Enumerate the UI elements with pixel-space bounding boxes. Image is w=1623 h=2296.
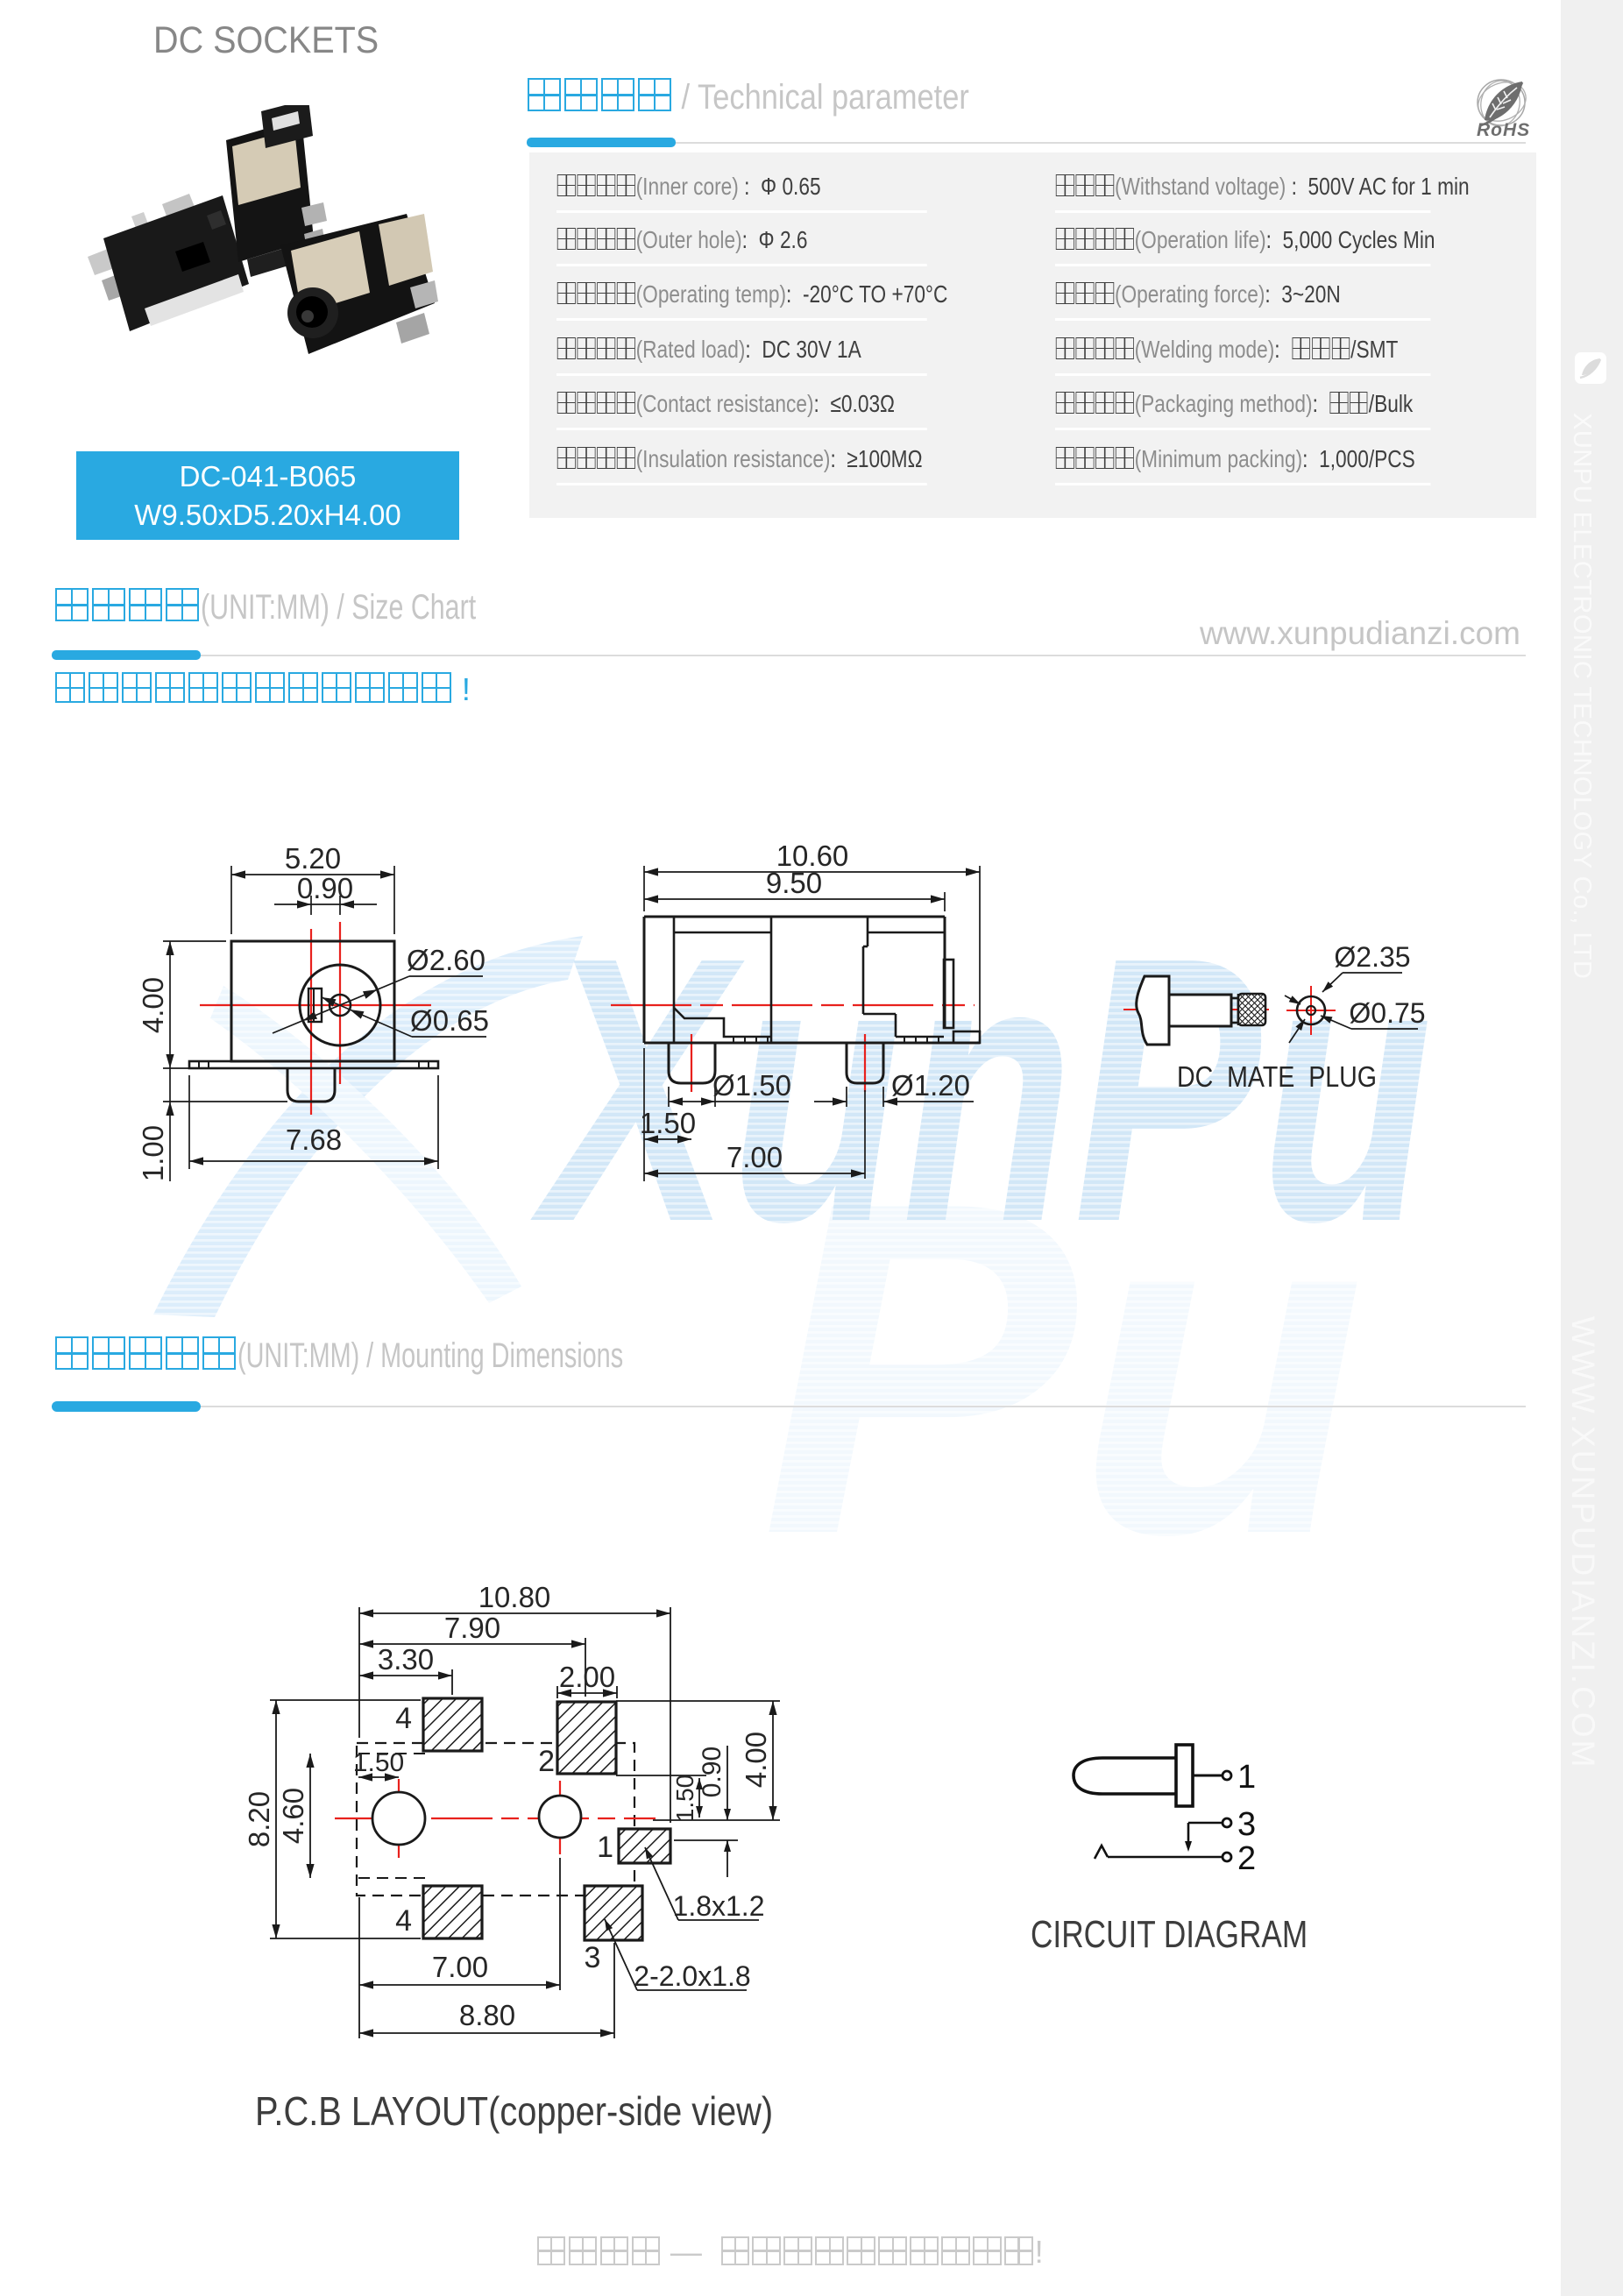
svg-text:Ø2.60: Ø2.60 [407, 944, 485, 976]
svg-text:DC MATE PLUG: DC MATE PLUG [1177, 1060, 1377, 1093]
svg-text:1.00: 1.00 [137, 1125, 169, 1181]
svg-text:3: 3 [1237, 1806, 1256, 1843]
svg-text:0.90: 0.90 [698, 1747, 726, 1797]
svg-text:7.68: 7.68 [286, 1123, 342, 1156]
svg-text:Ø2.35: Ø2.35 [1334, 941, 1410, 973]
svg-text:Ø0.65: Ø0.65 [410, 1004, 489, 1037]
svg-text:1.50: 1.50 [671, 1775, 698, 1823]
svg-text:RoHS: RoHS [1477, 120, 1530, 138]
svg-text:9.50: 9.50 [766, 867, 822, 899]
svg-text:4.00: 4.00 [740, 1732, 772, 1788]
svg-text:7.90: 7.90 [444, 1612, 500, 1644]
svg-text:7.00: 7.00 [432, 1951, 488, 1983]
svg-text:1.50: 1.50 [353, 1748, 404, 1777]
svg-text:8.20: 8.20 [243, 1791, 275, 1847]
svg-text:2-2.0x1.8: 2-2.0x1.8 [634, 1960, 750, 1992]
svg-text:3: 3 [585, 1941, 601, 1974]
svg-text:2: 2 [1237, 1840, 1256, 1877]
svg-text:1.50: 1.50 [640, 1107, 696, 1139]
svg-text:Ø1.20: Ø1.20 [891, 1069, 970, 1102]
svg-text:4: 4 [395, 1702, 412, 1735]
svg-text:1: 1 [1237, 1759, 1256, 1796]
svg-text:4.60: 4.60 [277, 1788, 309, 1844]
svg-text:2: 2 [538, 1745, 555, 1778]
svg-text:2.00: 2.00 [559, 1661, 615, 1693]
svg-text:1.8x1.2: 1.8x1.2 [673, 1890, 765, 1922]
svg-text:8.80: 8.80 [459, 1999, 515, 2031]
svg-text:7.00: 7.00 [726, 1141, 783, 1173]
svg-text:5.20: 5.20 [285, 842, 341, 875]
svg-text:3.30: 3.30 [378, 1643, 434, 1676]
svg-text:4.00: 4.00 [137, 977, 169, 1033]
svg-text:1: 1 [597, 1831, 613, 1864]
svg-text:Ø0.75: Ø0.75 [1349, 997, 1425, 1029]
svg-text:10.80: 10.80 [478, 1581, 551, 1613]
svg-text:4: 4 [395, 1904, 412, 1938]
svg-text:Ø1.50: Ø1.50 [712, 1069, 791, 1102]
svg-text:0.90: 0.90 [297, 872, 353, 904]
